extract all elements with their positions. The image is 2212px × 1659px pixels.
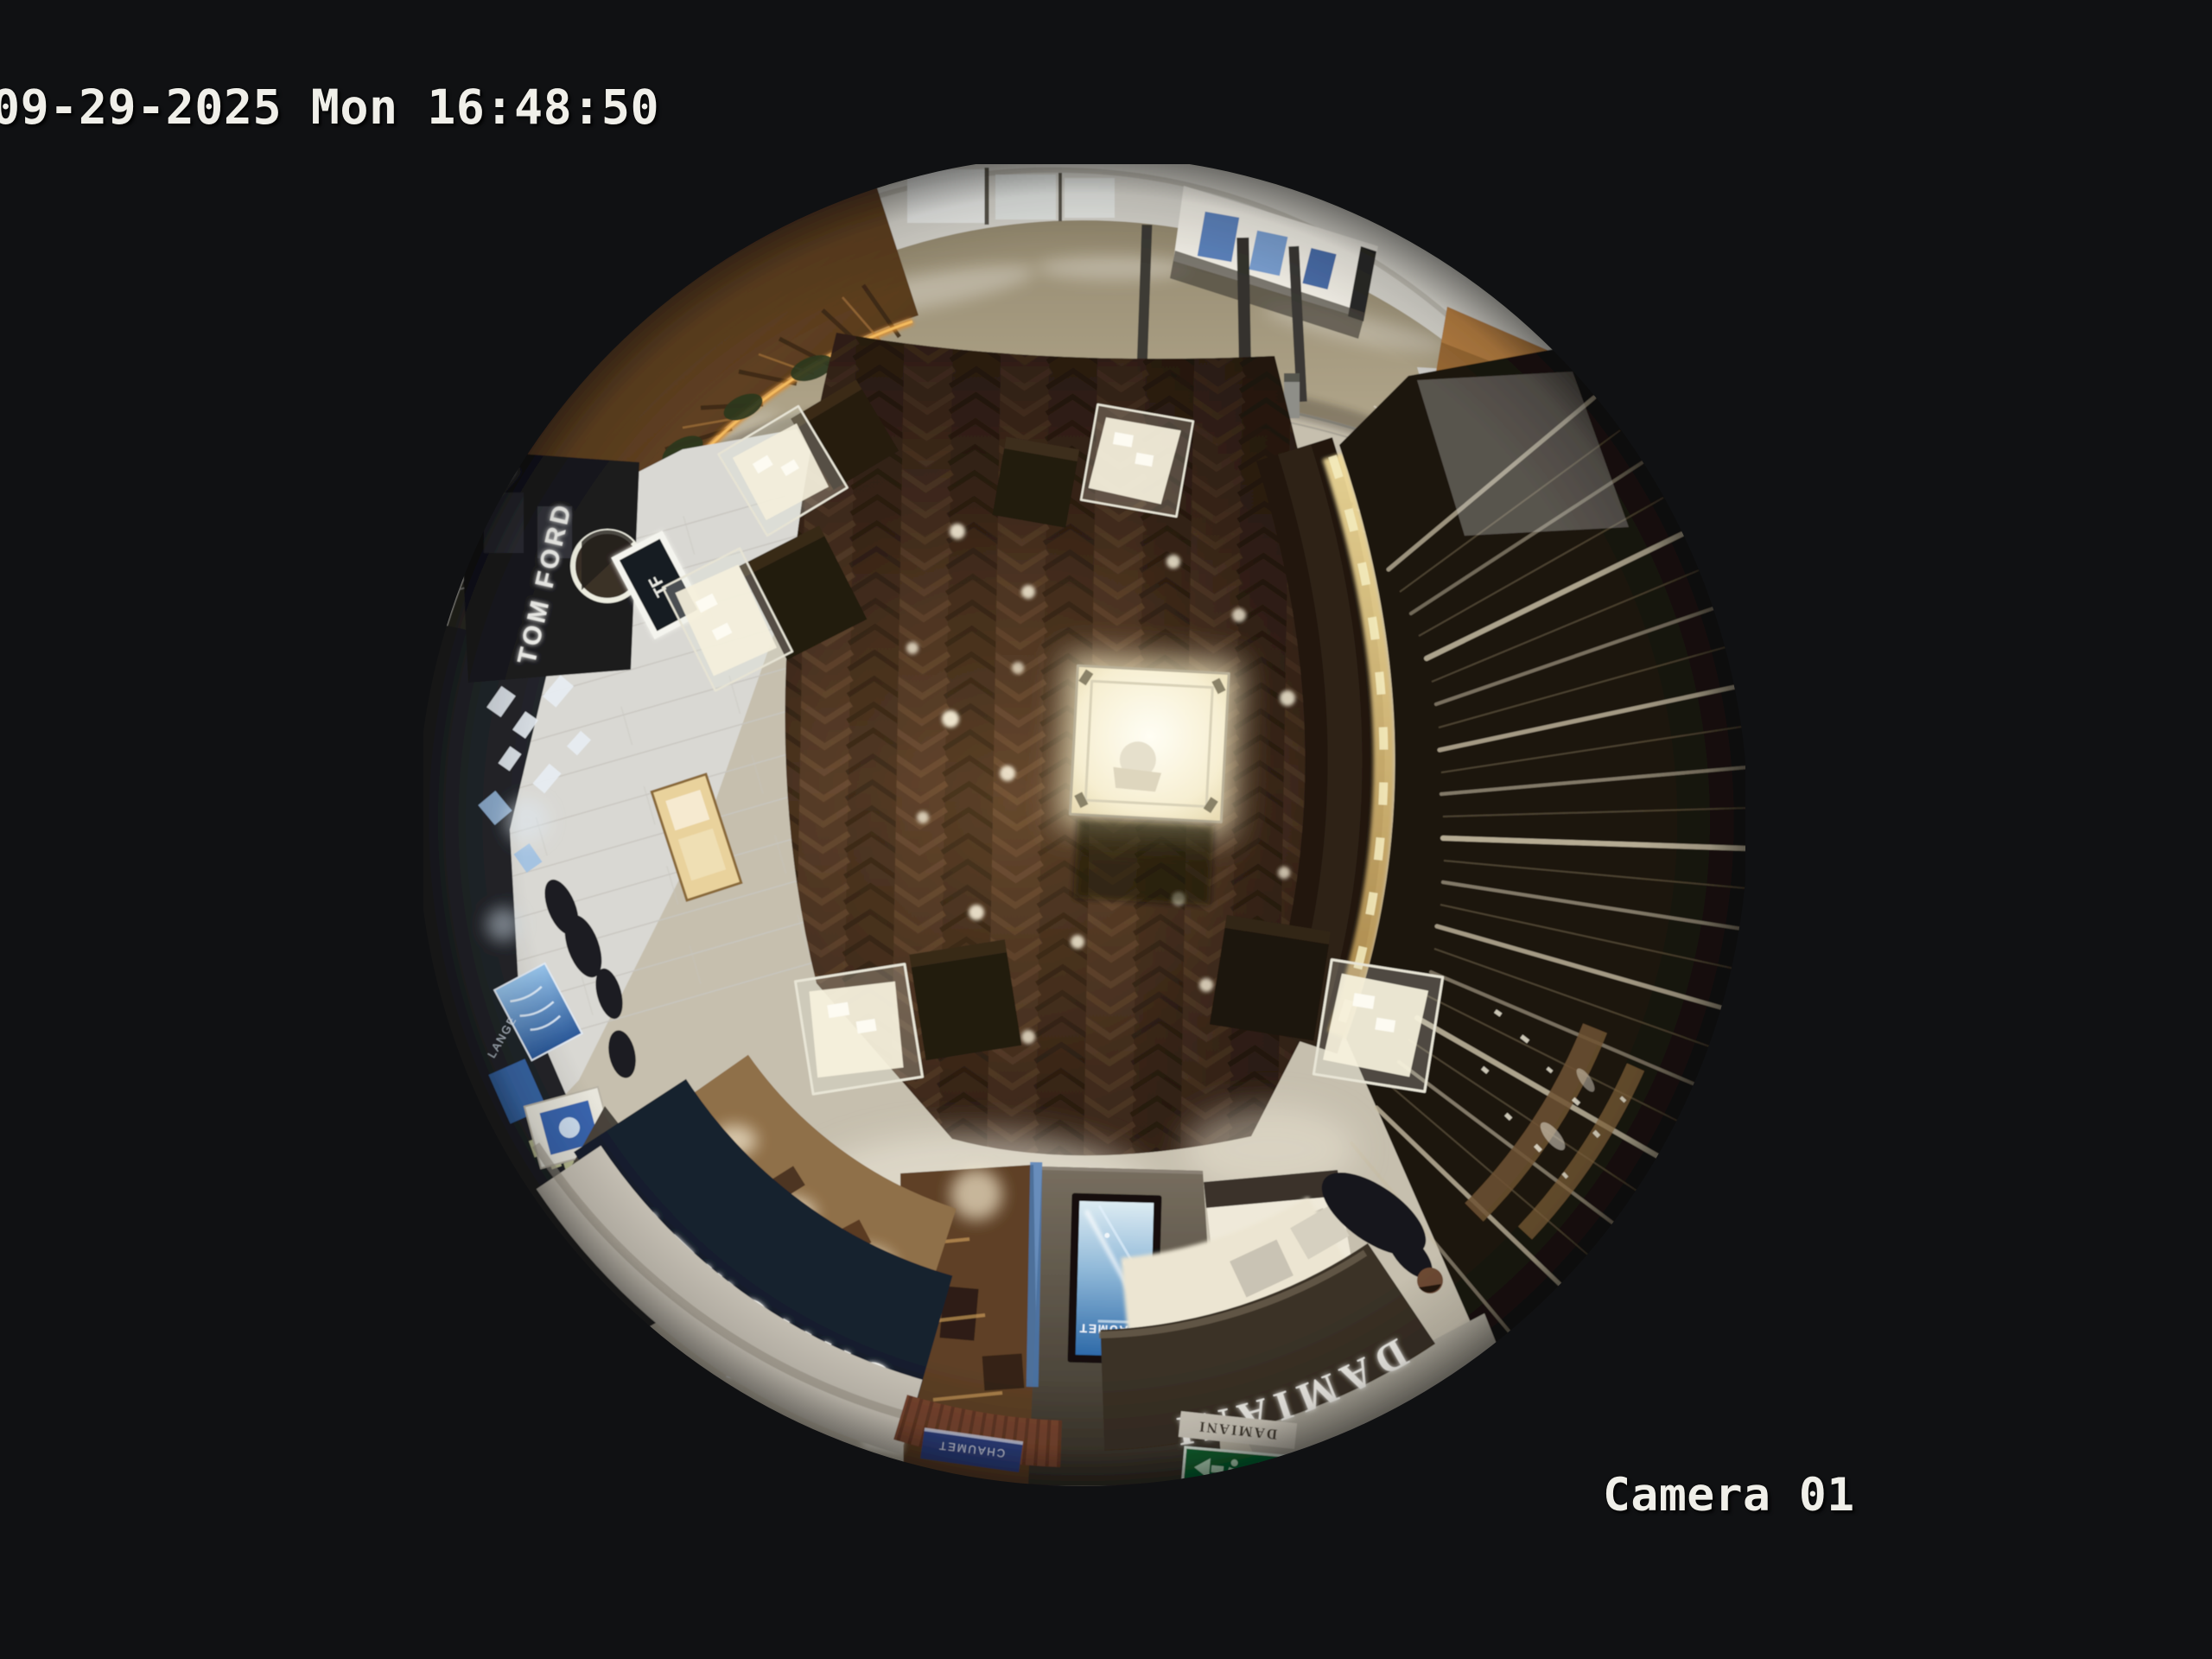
osd-timestamp: 09-29-2025 Mon 16:48:50 [0,79,659,135]
ceiling-light [1659,431,1689,479]
lens-vignette [423,164,1745,1486]
fisheye-camera-feed: TORY BURCH [423,164,1745,1486]
mall-floor-engraving-text: TORY BURCH [1538,225,1646,263]
fisheye-scene: TORY BURCH [423,164,1745,1486]
cctv-monitor-screen: { "window": { "width": 2560, "height": 1… [0,0,2212,1659]
osd-camera-label: Camera 01 [1603,1469,1855,1522]
fisheye-circle: TORY BURCH [423,164,1745,1486]
